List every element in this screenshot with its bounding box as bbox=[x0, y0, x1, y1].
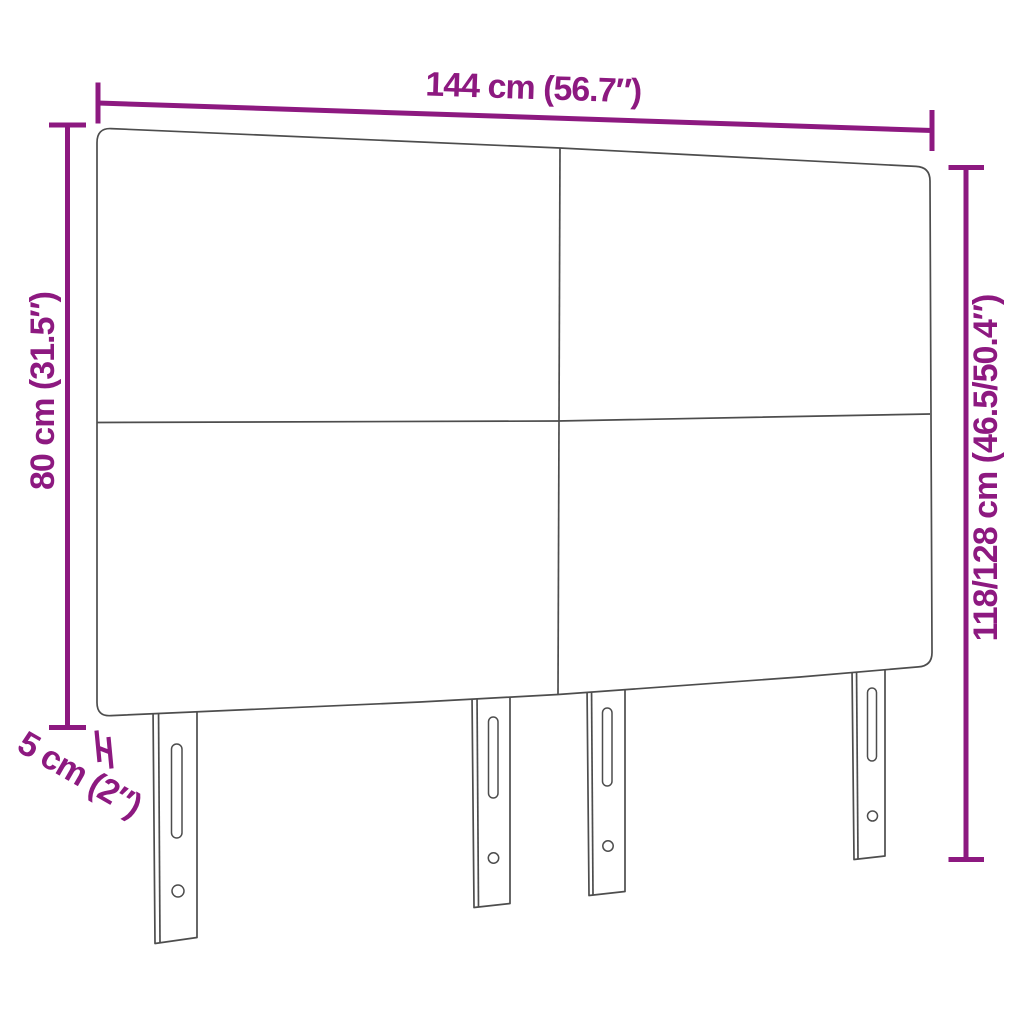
panel-height-dimension: 80 cm (31.5″) bbox=[24, 125, 86, 728]
leg-4 bbox=[852, 665, 885, 860]
headboard-diagram-canvas: 144 cm (56.7″) 80 cm (31.5″) 118/128 cm … bbox=[0, 0, 1024, 1024]
leg-1-slot bbox=[172, 744, 183, 838]
product-dimension-diagram: 144 cm (56.7″) 80 cm (31.5″) 118/128 cm … bbox=[0, 0, 1024, 1024]
leg-4-slot bbox=[868, 688, 877, 761]
leg-1-hole bbox=[172, 885, 184, 897]
leg-3-hole bbox=[603, 841, 613, 851]
width-dimension-line bbox=[98, 103, 932, 131]
leg-4-hole bbox=[868, 811, 878, 821]
width-dimension-label: 144 cm (56.7″) bbox=[425, 65, 642, 110]
panel-height-dimension-label: 80 cm (31.5″) bbox=[24, 292, 62, 490]
headboard bbox=[97, 129, 932, 716]
leg-2 bbox=[472, 692, 510, 908]
total-height-dimension-label: 118/128 cm (46.5/50.4″) bbox=[967, 295, 1005, 642]
leg-1 bbox=[153, 704, 197, 944]
total-height-dimension: 118/128 cm (46.5/50.4″) bbox=[949, 168, 1006, 860]
depth-dimension: 5 cm (2″) bbox=[11, 724, 148, 825]
leg-3-slot bbox=[603, 708, 613, 786]
leg-2-hole bbox=[488, 853, 498, 863]
leg-2-slot bbox=[489, 717, 499, 798]
depth-dimension-label: 5 cm (2″) bbox=[11, 724, 148, 825]
leg-3 bbox=[587, 683, 625, 896]
